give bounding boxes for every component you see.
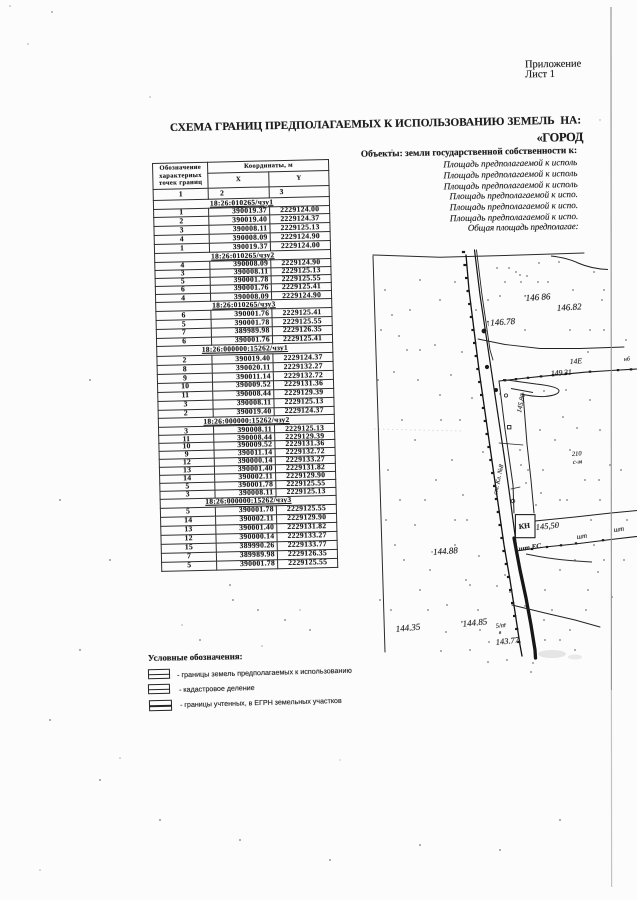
svg-text:210: 210 xyxy=(572,450,583,458)
svg-text:14Е: 14Е xyxy=(570,356,583,366)
svg-text:145,86: 145,86 xyxy=(515,392,527,413)
svg-text:↑146.78: ↑146.78 xyxy=(485,316,515,328)
svg-text:143.77: 143.77 xyxy=(495,635,520,647)
svg-text:в: в xyxy=(499,630,503,636)
svg-text:146.82: 146.82 xyxy=(556,301,582,313)
svg-text:шт: шт xyxy=(576,532,587,541)
svg-text:·144.88: ·144.88 xyxy=(430,545,458,557)
svg-text:нб: нб xyxy=(624,355,632,363)
svg-text:'144.85: '144.85 xyxy=(460,616,488,629)
svg-text:КН: КН xyxy=(518,521,530,531)
svg-text:149.31: 149.31 xyxy=(551,368,573,378)
svg-text:144.35: 144.35 xyxy=(395,621,421,634)
svg-text:шт.ЕС: шт.ЕС xyxy=(518,542,542,553)
svg-text:'146 86: '146 86 xyxy=(523,291,551,303)
svg-text:шт: шт xyxy=(613,525,624,534)
